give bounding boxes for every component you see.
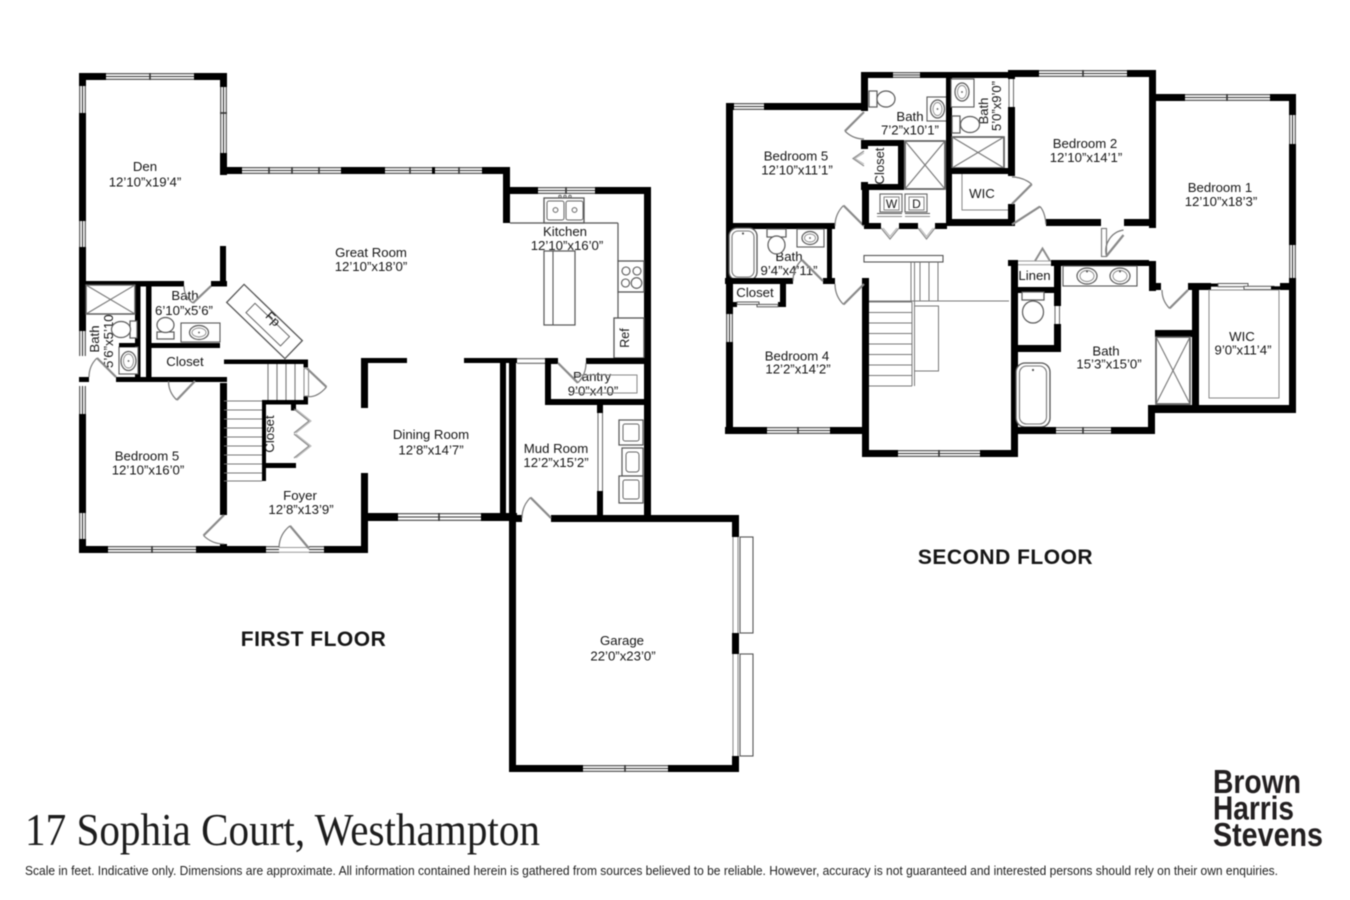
svg-text:7’2”x10’1”: 7’2”x10’1”	[881, 123, 939, 138]
svg-text:Great Room: Great Room	[335, 245, 407, 260]
svg-text:Dining Room: Dining Room	[393, 427, 469, 442]
svg-text:WIC: WIC	[969, 186, 995, 201]
svg-text:17 Sophia Court, Westhampton: 17 Sophia Court, Westhampton	[25, 804, 540, 855]
svg-text:9’0”x11’4”: 9’0”x11’4”	[1215, 343, 1272, 358]
svg-text:5’6”x5’10”: 5’6”x5’10”	[101, 310, 116, 368]
svg-text:Bath: Bath	[87, 325, 102, 352]
svg-text:5’0”x9’0”: 5’0”x9’0”	[989, 81, 1004, 131]
svg-text:12’10”x16’0”: 12’10”x16’0”	[112, 463, 185, 478]
svg-text:Garage: Garage	[600, 633, 644, 648]
svg-text:Closet: Closet	[262, 415, 277, 453]
svg-text:12’8”x14’7”: 12’8”x14’7”	[398, 443, 463, 458]
svg-text:Bedroom 5: Bedroom 5	[115, 449, 180, 464]
svg-text:12’10”x11’1”: 12’10”x11’1”	[761, 163, 833, 178]
svg-text:12’8”x13’9”: 12’8”x13’9”	[268, 502, 333, 517]
svg-text:12’2”x14’2”: 12’2”x14’2”	[765, 362, 830, 377]
svg-text:Closet: Closet	[736, 285, 774, 300]
svg-text:9’4”x4’11”: 9’4”x4’11”	[761, 263, 818, 278]
svg-text:Bedroom 5: Bedroom 5	[764, 149, 829, 164]
svg-text:SECOND FLOOR: SECOND FLOOR	[918, 546, 1093, 569]
svg-text:Closet: Closet	[872, 147, 887, 184]
svg-text:15’3”x15’0”: 15’3”x15’0”	[1076, 357, 1141, 372]
svg-text:Mud Room: Mud Room	[524, 441, 589, 456]
svg-text:Stevens: Stevens	[1213, 816, 1323, 853]
svg-text:12’2”x15’2”: 12’2”x15’2”	[523, 455, 588, 470]
svg-text:12’10”x19’4”: 12’10”x19’4”	[109, 175, 182, 190]
svg-text:FIRST FLOOR: FIRST FLOOR	[241, 628, 387, 651]
svg-text:Foyer: Foyer	[283, 488, 317, 503]
svg-text:Linen: Linen	[1018, 268, 1050, 283]
svg-text:12’10”x18’0”: 12’10”x18’0”	[335, 259, 408, 274]
svg-text:Scale in feet. Indicative only: Scale in feet. Indicative only. Dimensio…	[25, 863, 1278, 878]
svg-text:6’10”x5’6”: 6’10”x5’6”	[155, 303, 213, 318]
svg-text:Ref: Ref	[618, 328, 632, 348]
svg-text:9’0”x4’0”: 9’0”x4’0”	[568, 384, 619, 399]
svg-text:22’0”x23’0”: 22’0”x23’0”	[590, 649, 655, 664]
svg-text:12’10”x18’3”: 12’10”x18’3”	[1185, 194, 1258, 209]
svg-text:Bedroom 2: Bedroom 2	[1053, 136, 1118, 151]
svg-text:D: D	[912, 197, 921, 211]
svg-text:W: W	[886, 197, 898, 211]
svg-text:Closet: Closet	[166, 354, 204, 369]
svg-text:Kitchen: Kitchen	[543, 224, 587, 239]
svg-text:Den: Den	[133, 159, 157, 174]
svg-text:12’10”x14’1”: 12’10”x14’1”	[1050, 150, 1123, 165]
svg-text:Bedroom 1: Bedroom 1	[1188, 180, 1253, 195]
